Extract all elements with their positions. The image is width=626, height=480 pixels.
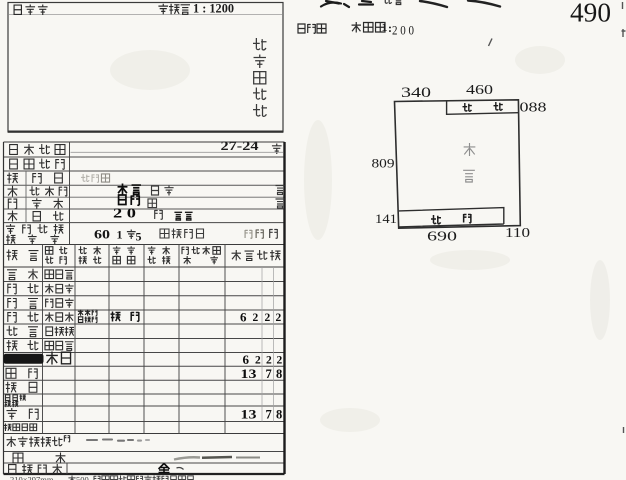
- svg-text:1: 1: [117, 228, 123, 242]
- svg-text:6: 6: [243, 352, 250, 367]
- svg-text:141: 141: [375, 211, 397, 226]
- svg-text:8: 8: [276, 367, 282, 381]
- svg-text:2: 2: [265, 312, 271, 324]
- svg-text:088: 088: [520, 100, 547, 115]
- svg-text:7: 7: [266, 408, 272, 422]
- svg-text:500: 500: [76, 475, 89, 480]
- svg-text:27-24: 27-24: [221, 138, 260, 153]
- svg-text:13: 13: [241, 367, 257, 381]
- svg-text:5: 5: [136, 230, 142, 244]
- svg-text:2: 2: [266, 355, 272, 367]
- svg-text:2: 2: [277, 355, 283, 367]
- svg-text:1 : 1200: 1 : 1200: [193, 2, 234, 16]
- svg-text:110: 110: [505, 225, 530, 240]
- svg-text:2 0: 2 0: [113, 207, 136, 222]
- svg-text:2: 2: [253, 312, 259, 324]
- svg-text:1: 1: [382, 20, 388, 34]
- svg-text:340: 340: [401, 85, 431, 101]
- svg-text:460: 460: [466, 82, 493, 97]
- svg-text:2: 2: [255, 355, 261, 367]
- svg-text:2 0 0: 2 0 0: [392, 23, 414, 38]
- svg-text:7: 7: [266, 367, 272, 381]
- svg-text:2: 2: [276, 312, 282, 324]
- svg-text:60: 60: [94, 227, 110, 242]
- svg-text:8: 8: [276, 408, 282, 422]
- svg-text:809: 809: [372, 156, 395, 171]
- svg-text:490: 490: [570, 0, 611, 28]
- svg-text:13: 13: [241, 408, 257, 422]
- svg-text:690: 690: [427, 229, 457, 244]
- svg-text:6: 6: [240, 310, 247, 325]
- svg-text:210×297mm: 210×297mm: [10, 475, 54, 480]
